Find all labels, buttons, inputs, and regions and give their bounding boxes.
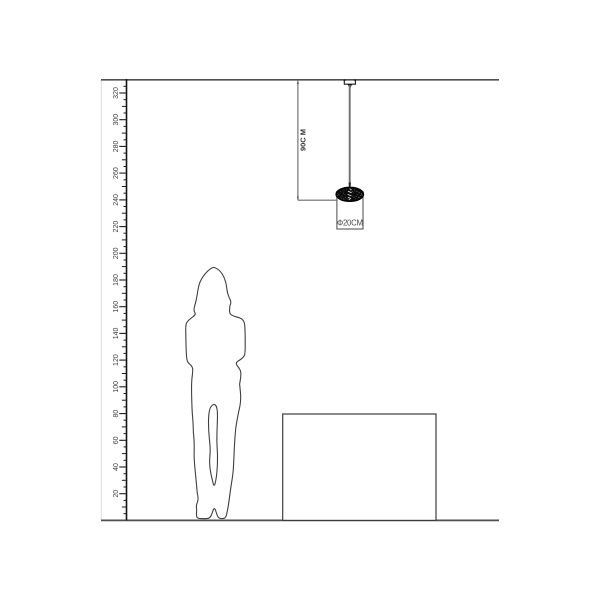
svg-text:120: 120	[113, 354, 120, 366]
svg-text:140: 140	[113, 327, 120, 339]
svg-text:220: 220	[113, 221, 120, 233]
svg-text:180: 180	[113, 274, 120, 286]
svg-text:200: 200	[113, 247, 120, 259]
svg-text:20: 20	[113, 490, 120, 498]
svg-text:240: 240	[113, 194, 120, 206]
svg-text:60: 60	[113, 436, 120, 444]
svg-text:100: 100	[113, 381, 120, 393]
svg-text:80: 80	[113, 410, 120, 418]
svg-text:40: 40	[113, 463, 120, 471]
svg-text:160: 160	[113, 301, 120, 313]
svg-text:300: 300	[113, 114, 120, 126]
svg-text:280: 280	[113, 140, 120, 152]
svg-text:320: 320	[113, 87, 120, 99]
svg-text:260: 260	[113, 167, 120, 179]
svg-text:90C M: 90C M	[299, 129, 308, 151]
svg-text:Φ20CM: Φ20CM	[337, 218, 363, 227]
